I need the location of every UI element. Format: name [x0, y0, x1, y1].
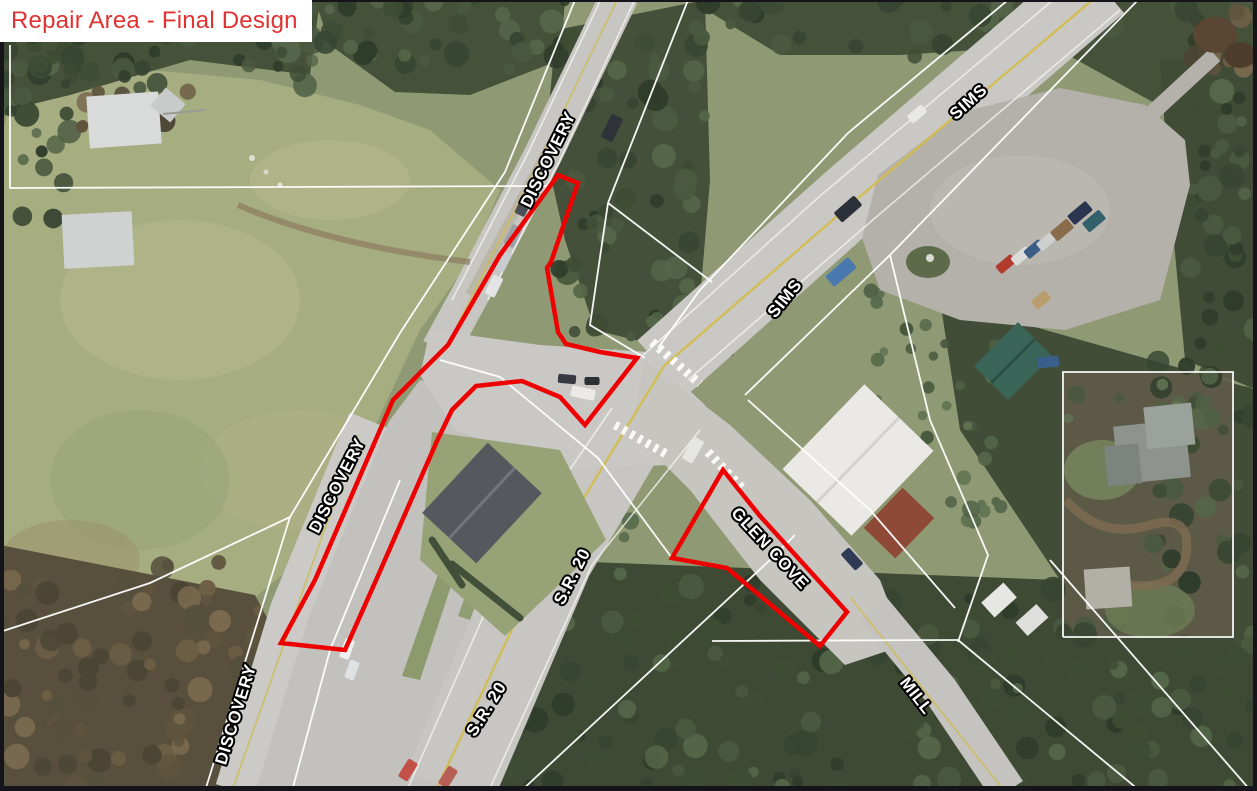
building-shed-nw [86, 92, 161, 149]
figure-title: Repair Area - Final Design [11, 7, 298, 35]
aerial-photo: DISCOVERYDISCOVERYDISCOVERYSIMSSIMSS.R. … [0, 0, 1257, 791]
building-barn [62, 211, 135, 269]
vehicle [1037, 356, 1060, 369]
map-figure: DISCOVERYDISCOVERYDISCOVERYSIMSSIMSS.R. … [0, 0, 1257, 791]
vehicle [558, 374, 577, 385]
building-shed-parcel [1084, 566, 1133, 609]
vehicle [585, 377, 600, 385]
title-box: Repair Area - Final Design [0, 0, 312, 42]
